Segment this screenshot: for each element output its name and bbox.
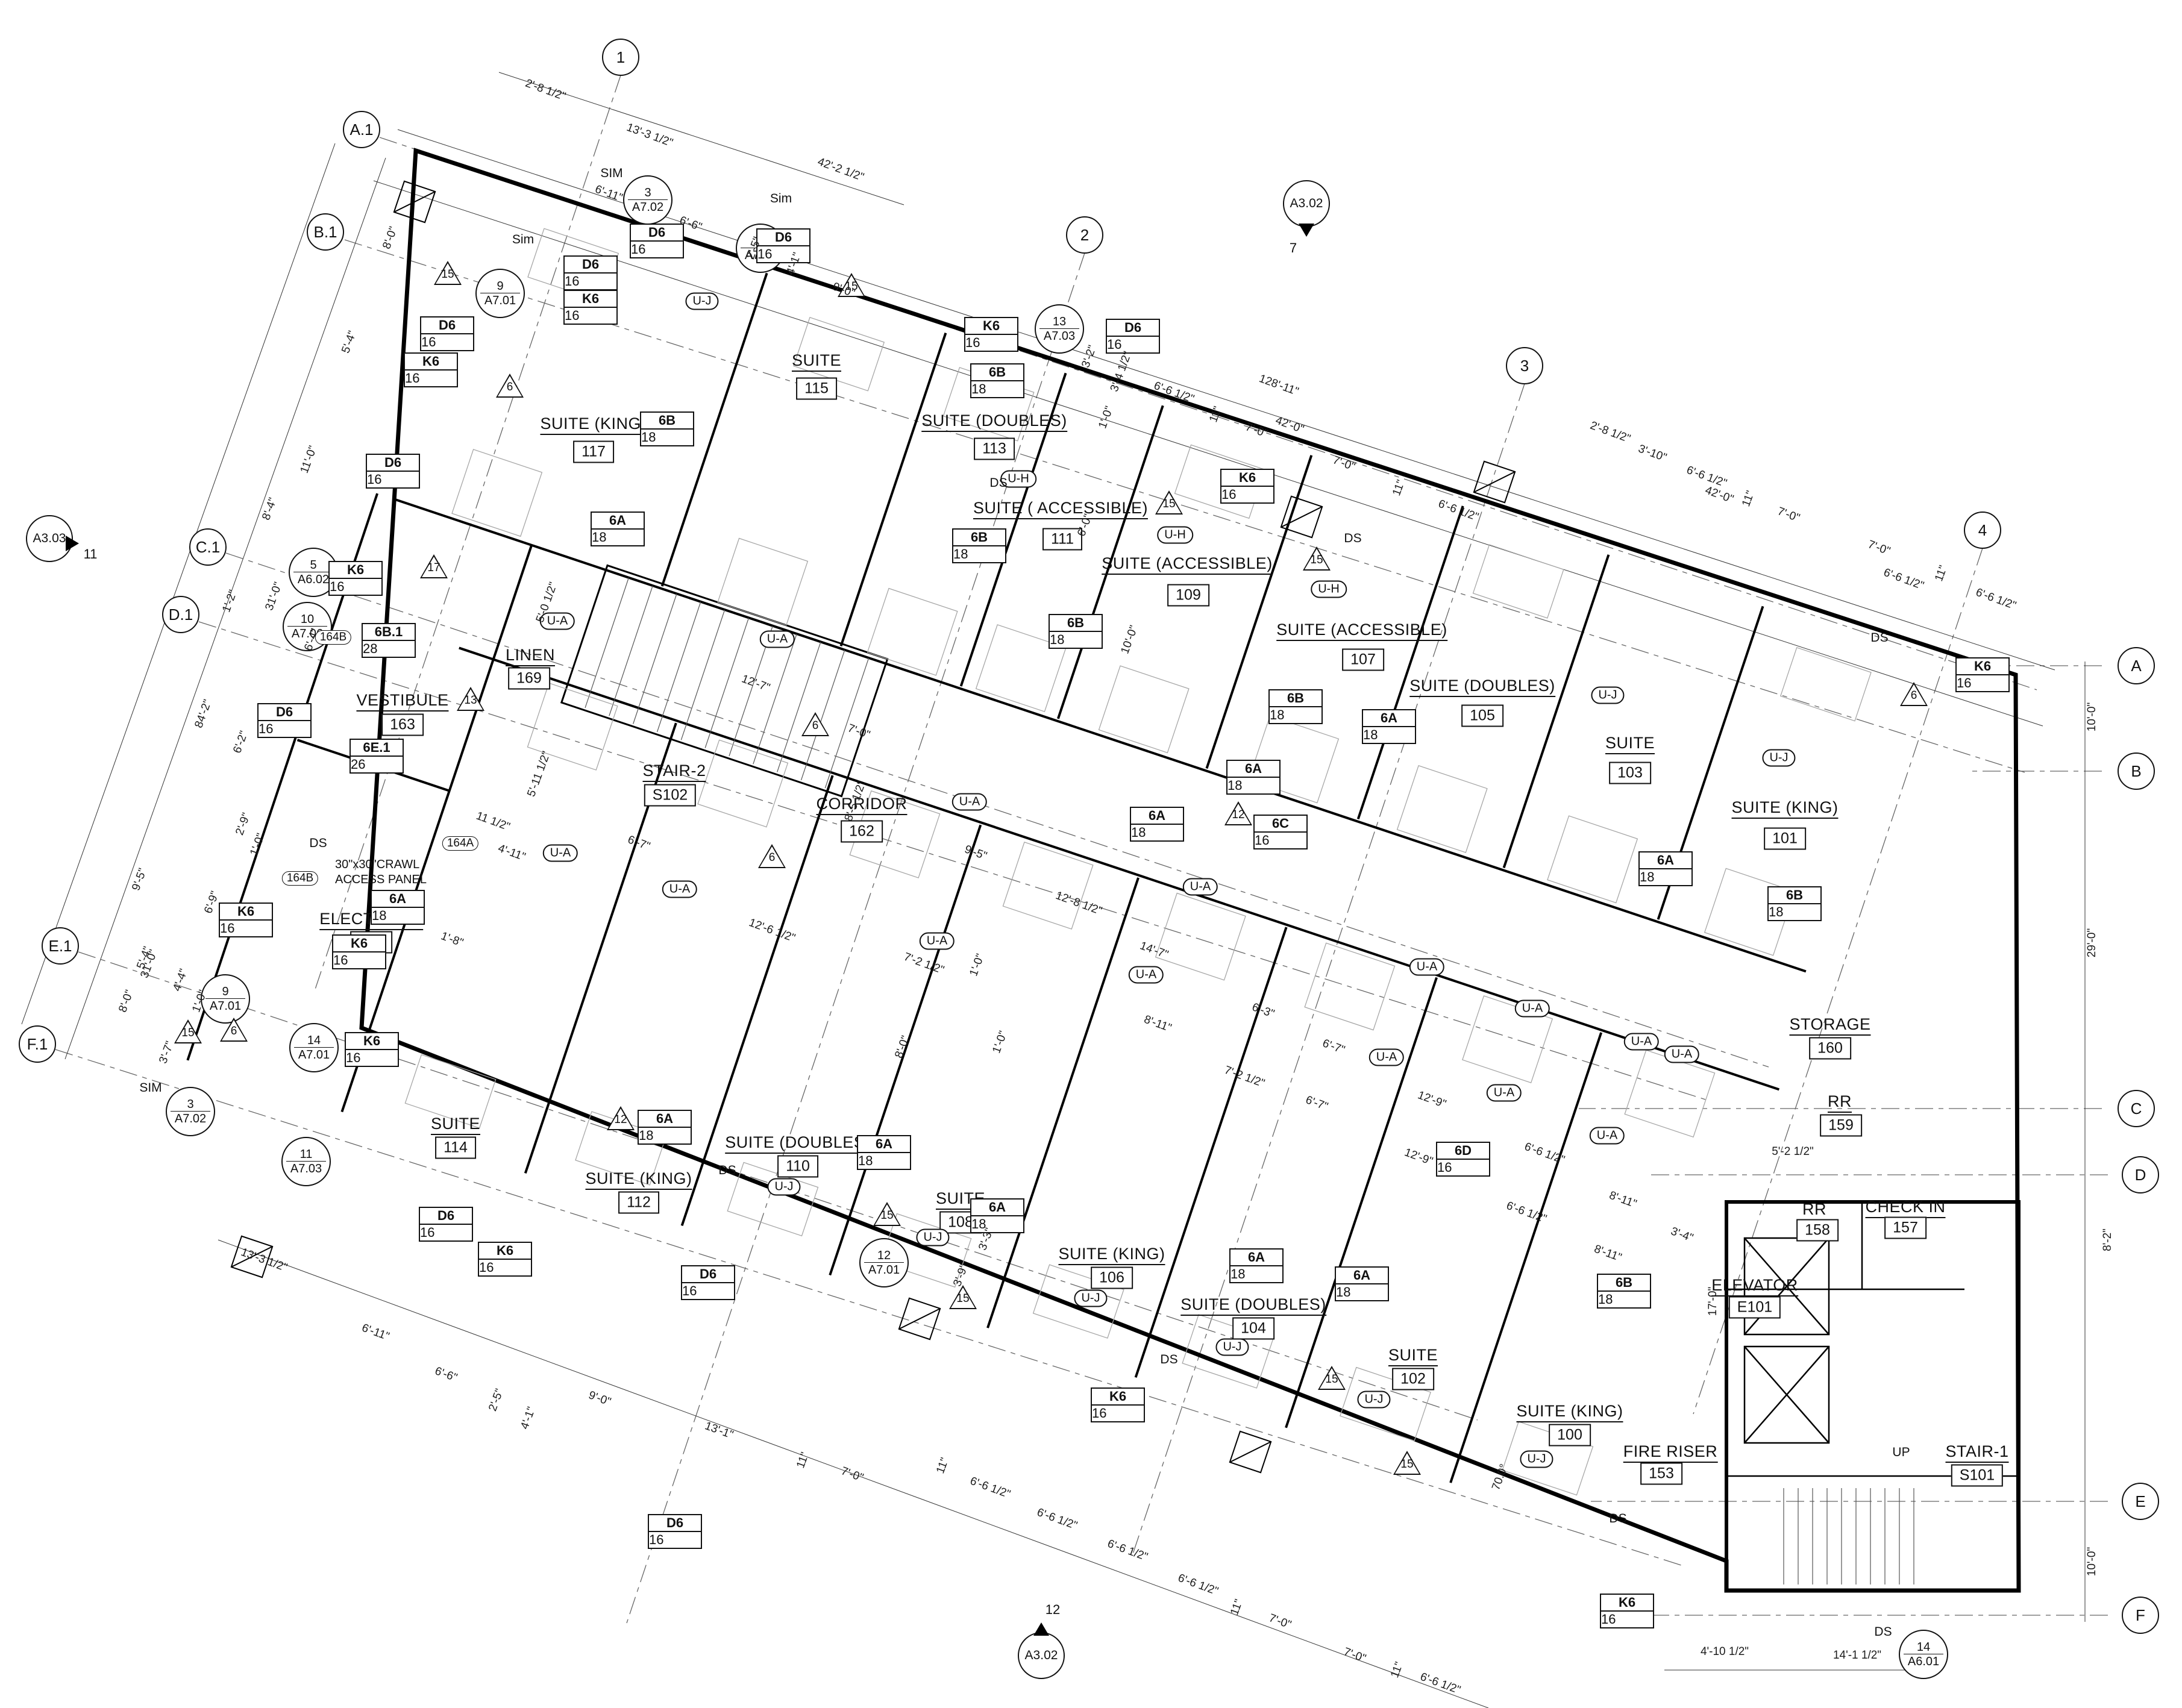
door-tag-6B: 6B18 (640, 411, 694, 446)
note-line: 30"x30"CRAWL (335, 857, 427, 872)
dimension-text: 10'-0" (2086, 702, 2099, 731)
keynote-number: 17 (420, 562, 448, 575)
door-tag-cell-c (1655, 869, 1658, 885)
annotation-ds: DS (718, 1163, 736, 1178)
door-tag-type: K6 (1601, 1595, 1653, 1612)
door-tag-type: K6 (965, 318, 1017, 335)
door-tag-cells: 16 (965, 335, 1017, 351)
wall-tag-U-A: U-A (1624, 1033, 1659, 1051)
door-tag-cell-c (697, 1283, 701, 1299)
door-tag-cell-b: 6 (337, 579, 344, 595)
door-tag-cells: 16 (1437, 1160, 1489, 1175)
door-tag-6B: 6B18 (1597, 1274, 1651, 1309)
door-tag-cells: 16 (259, 721, 310, 737)
door-tag-cell-a: 1 (1363, 727, 1370, 743)
wall-tag-U-A: U-A (1487, 1084, 1522, 1102)
door-tag-cell-c (1351, 1284, 1355, 1300)
door-tag-cells: 18 (1336, 1284, 1388, 1300)
door-tag-type: 6A (1131, 808, 1183, 825)
door-tag-D6: D616 (419, 1207, 473, 1242)
annotation-up: UP (1892, 1445, 1910, 1460)
door-tag-cells: 16 (1107, 337, 1159, 352)
door-tag-6C: 6C16 (1253, 815, 1308, 849)
door-tag-cell-b: 6 (1608, 1612, 1616, 1627)
room-name-109: SUITE (ACCESSIBLE) (1102, 554, 1273, 575)
door-tag-cell-c (420, 371, 424, 386)
door-tag-cells: 16 (682, 1283, 734, 1299)
door-tag-D6: D616 (681, 1265, 735, 1300)
wall-tag-U-J: U-J (1357, 1391, 1390, 1409)
door-tag-type: K6 (1957, 658, 2008, 675)
detail-marker: 9A7.01 (201, 974, 250, 1024)
keynote-triangle-icon: 6 (496, 374, 524, 398)
dimension-text: 4'-10 1/2" (1701, 1645, 1749, 1659)
room-number-109: 109 (1167, 584, 1209, 607)
grid-bubble-F.1: F.1 (19, 1025, 56, 1063)
door-tag-type: 6B (953, 530, 1005, 546)
door-tag-K6: K616 (332, 934, 386, 969)
door-tag-6B: 6B18 (970, 363, 1024, 398)
section-number: 11 (84, 546, 98, 562)
detail-number: 12 (864, 1249, 904, 1263)
door-tag-cell-c (361, 1050, 365, 1066)
door-tag-type: 6A (1336, 1268, 1388, 1284)
door-number-oval: 164B (315, 630, 351, 645)
room-number-103: 103 (1609, 762, 1651, 784)
door-tag-cells: 18 (1131, 825, 1183, 840)
room-name-102: SUITE (1388, 1346, 1438, 1366)
grid-bubble-A.1: A.1 (343, 111, 380, 148)
detail-sheet: A7.01 (298, 1048, 330, 1062)
door-tag-cell-c (235, 921, 239, 936)
door-tag-6A: 6A18 (1229, 1248, 1284, 1283)
section-number: 7 (1290, 240, 1297, 256)
door-tag-D6: D616 (420, 316, 474, 351)
door-tag-cell-c (1246, 1266, 1249, 1282)
door-tag-type: D6 (367, 455, 419, 472)
section-number: 12 (1046, 1602, 1060, 1618)
door-tag-6D: 6D16 (1436, 1142, 1490, 1177)
door-tag-type: 6A (592, 513, 644, 530)
door-tag-cells: 16 (1957, 675, 2008, 691)
door-tag-cell-c (1616, 1612, 1620, 1627)
wall-tag-U-J: U-J (1762, 749, 1795, 767)
annotation-ds: DS (1160, 1353, 1177, 1367)
keynote-triangle-icon: 15 (1155, 490, 1183, 515)
wall-tag-U-A: U-A (1183, 878, 1218, 896)
door-tag-type: K6 (330, 562, 381, 579)
wall-tag-U-J: U-J (1215, 1339, 1249, 1356)
door-tag-cells: 16 (1092, 1406, 1144, 1421)
door-tag-cell-a: 1 (1957, 675, 1964, 691)
room-name-110: SUITE (DOUBLES) (725, 1133, 871, 1154)
door-tag-cells: 16 (421, 334, 473, 350)
annotation-ds: DS (1344, 531, 1361, 546)
detail-sheet: A6.02 (298, 572, 329, 586)
door-tag-type: K6 (346, 1033, 398, 1050)
door-tag-K6: K616 (345, 1032, 399, 1067)
door-tag-cell-a: 1 (953, 546, 961, 562)
door-tag-cell-c (348, 953, 352, 968)
door-tag-cells: 18 (1227, 778, 1279, 793)
detail-marker: 3A7.02 (623, 175, 672, 225)
room-name-112: SUITE (KING) (585, 1169, 692, 1190)
door-tag-cell-a: 1 (1255, 833, 1262, 848)
door-tag-cells: 16 (479, 1260, 531, 1275)
door-tag-cell-b: 6 (973, 335, 980, 351)
door-tag-type: 6B (971, 364, 1023, 381)
room-name-158: RR (1802, 1200, 1826, 1221)
door-tag-6A: 6A18 (638, 1110, 692, 1145)
room-name-169: LINEN (506, 646, 555, 666)
door-tag-type: K6 (220, 904, 272, 921)
door-tag-K6: K616 (1600, 1594, 1654, 1628)
keynote-number: 15 (1155, 498, 1183, 511)
detail-number: 14 (294, 1034, 334, 1048)
door-tag-type: K6 (565, 291, 616, 308)
door-tag-cell-a: 1 (372, 908, 379, 924)
door-tag-cells: 16 (1255, 833, 1306, 848)
door-tag-cell-b: 6 (358, 757, 365, 772)
room-number-114: 114 (435, 1137, 476, 1159)
door-tag-cell-b: 6 (689, 1283, 697, 1299)
detail-marker: 11A7.03 (281, 1137, 331, 1186)
door-tag-cells: 16 (649, 1532, 701, 1548)
door-tag-6A: 6A18 (857, 1135, 911, 1170)
door-tag-cells: 16 (565, 274, 616, 289)
door-tag-cell-b: 8 (961, 546, 968, 562)
room-name-101: SUITE (KING) (1731, 798, 1838, 819)
dimension-text: 8'-2" (2101, 1228, 2115, 1251)
door-tag-cells: 18 (1769, 904, 1820, 920)
room-number-110: 110 (777, 1156, 818, 1178)
door-tag-6A: 6A18 (591, 511, 645, 546)
room-number-S102: S102 (644, 784, 696, 807)
door-tag-cell-b: 6 (1229, 487, 1236, 502)
door-tag-cells: 16 (333, 953, 385, 968)
door-tag-cells: 18 (1231, 1266, 1282, 1282)
door-tag-cells: 16 (420, 1225, 472, 1240)
door-tag-cell-a: 1 (330, 579, 337, 595)
door-tag-cells: 16 (367, 472, 419, 487)
door-tag-type: K6 (1092, 1389, 1144, 1406)
door-tag-cell-a: 1 (1336, 1284, 1343, 1300)
door-tag-cell-b: 8 (1370, 727, 1378, 743)
dimension-text: 5'-2 1/2" (1772, 1145, 1814, 1159)
door-tag-cell-a: 1 (1221, 487, 1229, 502)
door-tag-6B: 6B18 (1049, 614, 1103, 649)
door-tag-type: 6B (1598, 1275, 1650, 1292)
door-tag-cell-b: 6 (227, 921, 234, 936)
keynote-triangle-icon: 15 (949, 1285, 977, 1309)
grid-bubble-D: D (2122, 1156, 2159, 1193)
keynote-number: 12 (607, 1113, 635, 1127)
door-tag-K6: K616 (964, 317, 1018, 352)
grid-bubble-1: 1 (602, 39, 639, 76)
door-tag-cell-a: 1 (1601, 1612, 1608, 1627)
door-tag-cell-b: 8 (1343, 1284, 1350, 1300)
detail-sheet: A7.02 (632, 200, 663, 214)
detail-number: 5 (293, 558, 334, 572)
door-tag-cells: 18 (1270, 707, 1321, 723)
door-tag-cell-c (873, 1153, 877, 1169)
door-tag-cells: 16 (220, 921, 272, 936)
door-tag-cells: 18 (858, 1153, 910, 1169)
wall-tag-U-J: U-J (916, 1229, 949, 1247)
room-number-157: 157 (1884, 1217, 1926, 1239)
room-name-S102: STAIR-2 (642, 762, 706, 782)
door-tag-cell-a: 1 (479, 1260, 486, 1275)
door-tag-type: K6 (405, 354, 457, 371)
room-name-S101: STAIR-1 (1945, 1442, 2008, 1463)
stair1-treads (1784, 1488, 1914, 1584)
door-tag-type: 6B (641, 413, 693, 430)
dimension-text: 17'-0" (1707, 1287, 1720, 1316)
room-name-114: SUITE (431, 1115, 480, 1135)
door-tag-cell-a: 1 (1640, 869, 1647, 885)
detail-number: 9 (205, 985, 246, 999)
wall-tag-U-A: U-A (952, 793, 987, 811)
room-number-158: 158 (1796, 1219, 1839, 1242)
door-tag-cell-b: 8 (599, 530, 606, 545)
door-tag-type: D6 (259, 704, 310, 721)
door-tag-cell-b: 8 (1138, 825, 1146, 840)
door-tag-cell-b: 6 (1114, 337, 1121, 352)
door-tag-cell-b: 8 (646, 1128, 653, 1143)
furniture-hints (267, 228, 1871, 1501)
door-tag-6B.1: 6B.128 (362, 623, 416, 658)
door-tag-cell-c (1613, 1292, 1617, 1307)
door-tag-cell-b: 6 (638, 242, 645, 257)
door-tag-cell-b: 8 (1277, 707, 1284, 723)
door-tag-6A: 6A18 (970, 1198, 1024, 1233)
detail-sheet: A7.03 (1044, 329, 1075, 343)
door-tag-cell-c (980, 335, 984, 351)
room-number-S101: S101 (1951, 1465, 2003, 1487)
keynote-number: 6 (496, 381, 524, 394)
door-tag-type: D6 (649, 1515, 701, 1532)
wall-tag-U-A: U-A (543, 845, 578, 862)
door-tag-cell-a: 1 (333, 953, 340, 968)
section-marker: A3.02 (1018, 1632, 1065, 1679)
door-tag-cells: 16 (565, 308, 616, 324)
keynote-triangle-icon: 6 (758, 844, 786, 868)
door-tag-6A: 6A18 (1362, 709, 1416, 744)
door-tag-cell-a: 1 (1050, 632, 1057, 648)
door-tag-cell-b: 6 (266, 721, 273, 737)
door-tag-cell-a: 1 (965, 335, 973, 351)
room-name-111: SUITE ( ACCESSIBLE) (973, 499, 1148, 519)
annotation-ds: DS (1874, 1625, 1892, 1639)
door-tag-type: 6A (858, 1136, 910, 1153)
door-tag-cell-c (1237, 487, 1240, 502)
door-tag-cell-c (986, 381, 990, 397)
door-tag-type: 6A (971, 1200, 1023, 1216)
room-name-105: SUITE (DOUBLES) (1409, 677, 1555, 697)
door-tag-D6: D616 (648, 1514, 702, 1549)
door-tag-type: 6A (372, 891, 424, 908)
grid-bubble-C: C (2118, 1090, 2155, 1127)
grid-bubble-C.1: C.1 (189, 528, 227, 566)
door-tag-cell-a: 1 (367, 472, 374, 487)
room-number-115: 115 (796, 378, 837, 400)
door-tag-cell-c (1285, 707, 1288, 723)
dimension-text: 14'-1 1/2" (1833, 1649, 1881, 1662)
door-tag-cell-a: 1 (971, 381, 979, 397)
detail-sheet: A7.02 (175, 1112, 206, 1125)
keynote-triangle-icon: 15 (174, 1019, 202, 1043)
room-number-101: 101 (1764, 828, 1806, 850)
door-tag-cell-c (654, 1128, 657, 1143)
door-tag-K6: K616 (478, 1242, 532, 1277)
door-tag-cell-a: 1 (346, 1050, 353, 1066)
crawl-access-note: 30"x30"CRAWLACCESS PANEL (335, 857, 427, 887)
door-tag-type: 6C (1255, 816, 1306, 833)
room-number-169: 169 (508, 668, 550, 690)
door-tag-cell-a: 1 (1092, 1406, 1099, 1421)
door-tag-cell-c (1065, 632, 1068, 648)
door-tag-cell-b: 6 (572, 308, 579, 324)
grid-bubble-B.1: B.1 (307, 213, 344, 251)
grid-bubble-3: 3 (1506, 347, 1543, 384)
door-tag-cell-c (366, 757, 369, 772)
grid-bubble-E: E (2122, 1483, 2159, 1520)
door-tag-cells: 16 (346, 1050, 398, 1066)
door-tag-cell-b: 8 (370, 641, 377, 657)
door-tag-cell-b: 8 (1647, 869, 1654, 885)
door-tag-cell-a: 1 (592, 530, 599, 545)
keynote-number: 6 (758, 851, 786, 865)
wall-tag-U-A: U-A (1664, 1046, 1699, 1063)
door-tag-cell-a: 1 (405, 371, 412, 386)
door-tag-cells: 18 (641, 430, 693, 445)
door-tag-cell-a: 1 (1437, 1160, 1444, 1175)
detail-number: 3 (628, 186, 668, 200)
door-tag-cell-c (494, 1260, 498, 1275)
room-number-100: 100 (1549, 1424, 1591, 1447)
keynote-triangle-icon: 15 (1318, 1366, 1346, 1390)
door-tag-cell-b: 8 (1235, 778, 1242, 793)
door-tag-D6: D616 (1106, 319, 1160, 354)
door-tag-cell-b: 6 (374, 472, 381, 487)
door-tag-cell-b: 6 (486, 1260, 494, 1275)
room-number-106: 106 (1091, 1267, 1133, 1289)
door-tag-type: 6A (1640, 852, 1691, 869)
door-tag-cell-b: 6 (427, 1225, 434, 1240)
keynote-triangle-icon: 15 (873, 1202, 901, 1226)
door-tag-cell-c (435, 1225, 439, 1240)
door-tag-K6: K616 (563, 290, 618, 325)
door-tag-cell-c (646, 242, 650, 257)
door-tag-cell-c (274, 721, 277, 737)
room-name-106: SUITE (KING) (1058, 1245, 1165, 1265)
annotation-sim: Sim (770, 192, 792, 206)
door-tag-D6: D616 (630, 224, 684, 258)
detail-marker: 13A7.03 (1035, 304, 1084, 354)
door-tag-cells: 16 (1221, 487, 1273, 502)
room-name-E101: ELEVATOR (1711, 1276, 1798, 1297)
keynote-number: 15 (949, 1292, 977, 1306)
keynote-number: 15 (1318, 1373, 1346, 1386)
annotation-ds: DS (1870, 631, 1888, 645)
wall-tag-U-A: U-A (760, 631, 795, 648)
keynote-triangle-icon: 13 (457, 687, 484, 711)
door-tag-cells: 18 (1050, 632, 1102, 648)
room-number-105: 105 (1461, 705, 1503, 727)
door-tag-cell-b: 8 (979, 381, 986, 397)
door-tag-cell-b: 6 (1262, 833, 1269, 848)
door-tag-K6: K616 (1220, 469, 1274, 504)
door-tag-D6: D616 (257, 703, 312, 738)
detail-number: 9 (480, 280, 521, 293)
door-tag-cell-a: 1 (1227, 778, 1235, 793)
door-tag-cell-a: 1 (1769, 904, 1776, 920)
door-tag-6A: 6A18 (371, 890, 425, 925)
door-tag-cell-c (1784, 904, 1787, 920)
floor-plan-sheet: 1234A.1B.1C.1D.1E.1F.1ABCDEF3A7.0211A7.0… (0, 0, 2182, 1708)
grid-bubble-D.1: D.1 (162, 596, 199, 633)
door-tag-type: D6 (757, 230, 809, 246)
room-number-163: 163 (381, 714, 424, 736)
door-tag-type: K6 (479, 1243, 531, 1260)
door-tag-cell-c (664, 1532, 668, 1548)
door-tag-cell-a: 1 (565, 274, 572, 289)
door-tag-cells: 28 (363, 641, 415, 657)
detail-marker: 3A7.02 (166, 1087, 215, 1136)
door-tag-6B: 6B18 (952, 528, 1006, 563)
keynote-number: 15 (434, 268, 462, 281)
door-tag-cell-b: 6 (765, 246, 772, 262)
detail-number: 3 (171, 1098, 211, 1112)
detail-number: 14 (1904, 1641, 1944, 1654)
door-tag-cell-a: 2 (351, 757, 358, 772)
door-tag-cell-c (580, 308, 583, 324)
door-tag-cells: 16 (330, 579, 381, 595)
door-tag-cell-b: 8 (1057, 632, 1064, 648)
door-tag-cell-a: 1 (641, 430, 648, 445)
detail-sheet: A7.03 (290, 1162, 322, 1175)
room-number-E101: E101 (1729, 1297, 1781, 1319)
door-number-oval: 164A (442, 836, 478, 851)
wall-tag-U-J: U-J (1591, 687, 1624, 704)
door-tag-type: 6B.1 (363, 624, 415, 641)
grid-bubble-2: 2 (1066, 216, 1103, 254)
door-tag-cell-a: 1 (565, 308, 572, 324)
annotation-sim: SIM (139, 1081, 161, 1095)
door-tag-cells: 18 (971, 1216, 1023, 1232)
room-name-160: STORAGE (1789, 1015, 1870, 1036)
door-tag-cell-c (387, 908, 390, 924)
door-tag-K6: K616 (1955, 657, 2010, 692)
room-number-113: 113 (974, 438, 1015, 460)
door-tag-cell-a: 1 (1131, 825, 1138, 840)
door-tag-cells: 18 (953, 546, 1005, 562)
door-tag-cell-a: 2 (363, 641, 370, 657)
annotation-sim: Sim (512, 233, 534, 247)
wall-tag-U-A: U-A (920, 933, 955, 950)
room-number-160: 160 (1809, 1037, 1851, 1060)
door-tag-cell-b: 6 (656, 1532, 663, 1548)
annotation-ds: DS (989, 476, 1007, 490)
door-tag-cell-a: 1 (1107, 337, 1114, 352)
room-name-117: SUITE (KING) (540, 414, 647, 435)
door-tag-cell-c (773, 246, 776, 262)
door-tag-K6: K616 (1091, 1387, 1145, 1422)
plan-linework (0, 0, 2182, 1708)
wall-tag-U-A: U-A (1590, 1127, 1625, 1145)
door-tag-K6: K616 (328, 561, 383, 596)
keynote-triangle-icon: 6 (801, 712, 829, 736)
